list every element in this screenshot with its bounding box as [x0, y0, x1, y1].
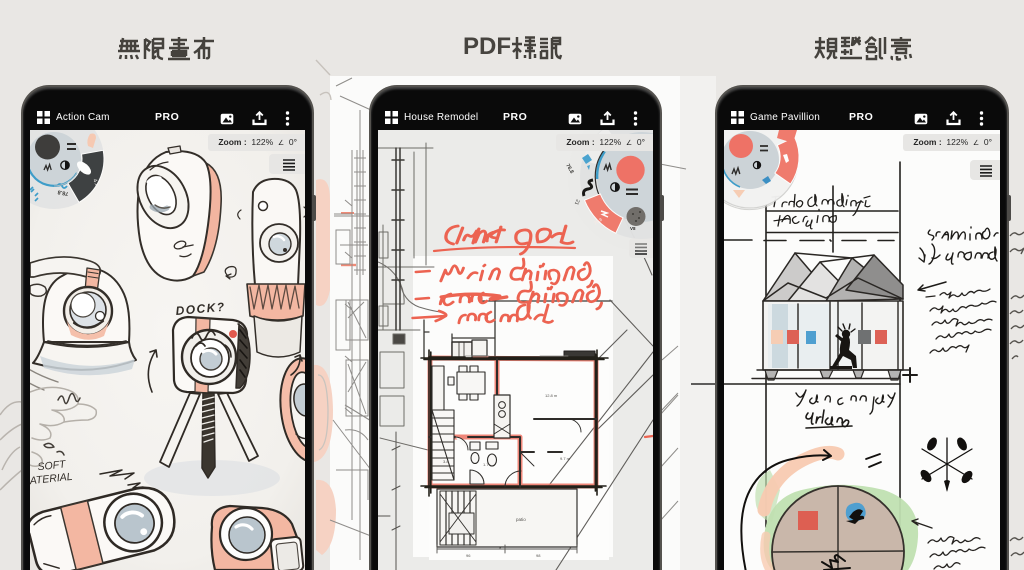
svg-text:V8: V8	[630, 226, 636, 231]
